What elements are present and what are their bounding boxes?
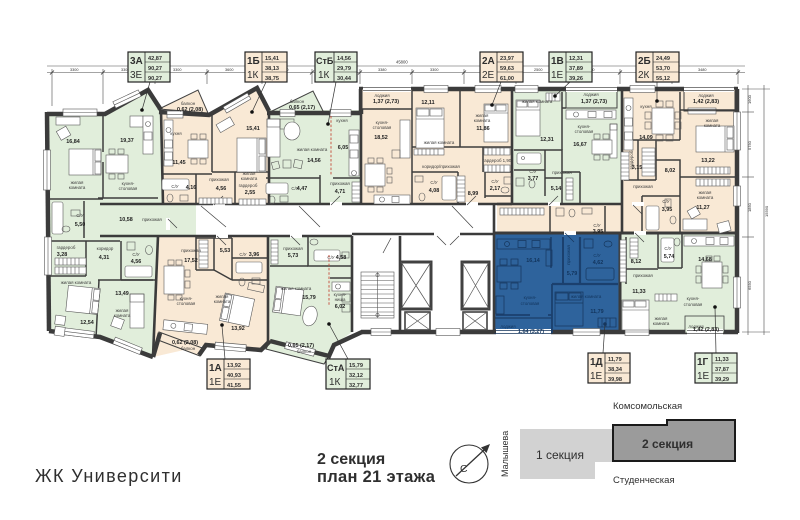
svg-text:41,55: 41,55 (227, 383, 241, 389)
svg-text:прихожая: прихожая (209, 177, 229, 182)
svg-text:С/У: С/У (662, 199, 669, 204)
svg-text:балкон: балкон (290, 99, 305, 104)
svg-text:11,33: 11,33 (715, 357, 729, 363)
svg-text:14,56: 14,56 (337, 56, 351, 62)
svg-text:11,79: 11,79 (608, 357, 622, 363)
svg-text:39,26: 39,26 (569, 76, 583, 82)
svg-text:балкон: балкон (181, 101, 196, 106)
svg-text:1К: 1К (329, 377, 341, 388)
svg-text:15,41: 15,41 (246, 126, 260, 132)
svg-text:4,62: 4,62 (593, 260, 604, 266)
svg-text:61,00: 61,00 (500, 76, 514, 82)
svg-text:16,84: 16,84 (66, 139, 80, 145)
svg-text:С/У: С/У (593, 253, 600, 258)
svg-text:13,49: 13,49 (115, 291, 129, 297)
svg-text:столовая: столовая (684, 302, 703, 307)
svg-text:0,62 (2,08): 0,62 (2,08) (177, 107, 203, 113)
svg-text:балкон: балкон (297, 349, 312, 354)
svg-text:С/У: С/У (593, 223, 600, 228)
svg-text:кухня: кухня (170, 131, 182, 136)
svg-text:жилая комната: жилая комната (424, 140, 455, 145)
svg-text:5,73: 5,73 (288, 253, 299, 259)
svg-text:1,42 (2,83): 1,42 (2,83) (693, 327, 719, 333)
svg-text:13,22: 13,22 (701, 158, 715, 164)
svg-text:столовая: столовая (575, 129, 594, 134)
svg-text:1,42 (2,83): 1,42 (2,83) (693, 99, 719, 105)
svg-text:С/У: С/У (76, 213, 83, 218)
svg-text:4,31: 4,31 (99, 255, 110, 261)
svg-text:11,27: 11,27 (696, 205, 709, 211)
svg-text:Малышева: Малышева (500, 431, 510, 477)
svg-text:4,16: 4,16 (186, 185, 197, 191)
svg-text:кухня: кухня (336, 118, 348, 123)
svg-text:8,12: 8,12 (631, 259, 642, 265)
svg-text:14,09: 14,09 (639, 135, 653, 141)
svg-text:10,58: 10,58 (119, 217, 133, 223)
svg-text:2К: 2К (638, 70, 650, 81)
svg-text:балкон: балкон (181, 346, 196, 351)
svg-text:3300: 3300 (430, 68, 438, 72)
svg-text:38,13: 38,13 (265, 66, 279, 72)
svg-text:1,64 (3,27): 1,64 (3,27) (518, 329, 544, 335)
svg-text:прихожая: прихожая (283, 246, 303, 251)
svg-text:38,75: 38,75 (265, 76, 279, 82)
svg-text:кухня: кухня (640, 104, 652, 109)
svg-text:30,44: 30,44 (337, 76, 352, 82)
svg-text:3,96: 3,96 (249, 252, 260, 258)
svg-text:4,47: 4,47 (297, 186, 308, 192)
svg-text:12,11: 12,11 (421, 100, 434, 106)
svg-text:2Б: 2Б (638, 56, 651, 67)
svg-text:С/У: С/У (491, 179, 498, 184)
svg-text:прихожая: прихожая (552, 170, 572, 175)
svg-text:3,95: 3,95 (593, 229, 604, 235)
svg-text:4,56: 4,56 (216, 186, 227, 192)
svg-text:1850: 1850 (747, 202, 752, 212)
svg-text:42,87: 42,87 (148, 56, 162, 62)
svg-text:1Е: 1Е (551, 70, 564, 81)
svg-text:3Е: 3Е (130, 70, 143, 81)
svg-text:90,27: 90,27 (148, 66, 162, 72)
svg-text:24,49: 24,49 (656, 56, 670, 62)
svg-text:37,89: 37,89 (569, 66, 583, 72)
svg-text:14,56: 14,56 (307, 158, 321, 164)
svg-text:0,65 (2,17): 0,65 (2,17) (289, 105, 315, 111)
svg-text:Студенческая: Студенческая (613, 475, 675, 486)
svg-text:32,77: 32,77 (349, 383, 363, 389)
svg-text:СтБ: СтБ (316, 56, 334, 66)
svg-text:90,27: 90,27 (148, 76, 162, 82)
svg-text:3600: 3600 (225, 68, 233, 72)
svg-text:4,56: 4,56 (131, 259, 142, 265)
svg-text:11,79: 11,79 (590, 309, 603, 315)
svg-text:2,55: 2,55 (245, 190, 256, 196)
svg-text:1Д: 1Д (590, 357, 603, 368)
svg-text:59,63: 59,63 (500, 66, 514, 72)
svg-text:С/У: С/У (327, 255, 334, 260)
svg-text:жилая комната: жилая комната (281, 286, 312, 291)
svg-text:С/У: С/У (239, 252, 246, 257)
svg-text:ЖК Университи: ЖК Университи (35, 466, 183, 486)
svg-text:16,14: 16,14 (526, 258, 540, 264)
svg-text:3,77: 3,77 (528, 176, 539, 182)
svg-text:12,54: 12,54 (80, 320, 94, 326)
svg-text:3,95: 3,95 (662, 207, 673, 213)
svg-text:55,12: 55,12 (656, 76, 670, 82)
svg-text:37,87: 37,87 (715, 367, 729, 373)
svg-text:3,28: 3,28 (57, 252, 68, 258)
svg-text:3480: 3480 (698, 68, 706, 72)
svg-text:39,98: 39,98 (608, 377, 622, 383)
svg-text:13,92: 13,92 (231, 326, 245, 332)
svg-text:гардероб 1,90: гардероб 1,90 (483, 158, 512, 163)
svg-text:комната: комната (704, 123, 721, 128)
svg-text:1 секция: 1 секция (536, 448, 584, 462)
svg-text:коридор: коридор (97, 246, 114, 251)
svg-text:прихожая: прихожая (566, 245, 571, 265)
svg-text:коридор/прихожая: коридор/прихожая (422, 164, 460, 169)
svg-text:1В: 1В (551, 56, 564, 67)
svg-text:6,02: 6,02 (335, 304, 346, 310)
svg-text:8,99: 8,99 (468, 191, 479, 197)
svg-text:1К: 1К (247, 70, 259, 81)
svg-text:1,37 (2,73): 1,37 (2,73) (581, 99, 607, 105)
svg-text:2,17: 2,17 (490, 186, 501, 192)
svg-text:38,34: 38,34 (608, 367, 623, 373)
svg-text:1Е: 1Е (697, 371, 710, 382)
svg-text:40,93: 40,93 (227, 373, 241, 379)
svg-text:3,15: 3,15 (632, 165, 643, 171)
svg-text:23,97: 23,97 (500, 56, 514, 62)
svg-text:3380: 3380 (378, 68, 386, 72)
svg-text:1Е: 1Е (590, 371, 603, 382)
svg-text:5750: 5750 (747, 140, 752, 150)
svg-text:1Г: 1Г (697, 357, 709, 368)
svg-text:гардероб: гардероб (57, 245, 76, 250)
svg-text:6550: 6550 (747, 280, 752, 290)
svg-text:2А: 2А (482, 56, 495, 67)
svg-text:комната: комната (69, 185, 86, 190)
svg-text:4,58: 4,58 (336, 255, 347, 261)
svg-text:5,50: 5,50 (75, 222, 86, 228)
svg-text:С/У: С/У (132, 252, 139, 257)
svg-text:12,31: 12,31 (569, 56, 583, 62)
svg-text:45800: 45800 (396, 60, 408, 65)
svg-text:53,70: 53,70 (656, 66, 670, 72)
svg-text:кухня-: кухня- (687, 296, 700, 301)
svg-text:столовая: столовая (373, 125, 392, 130)
svg-text:лоджия: лоджия (698, 93, 714, 98)
svg-text:11,86: 11,86 (476, 126, 489, 132)
svg-text:11,45: 11,45 (172, 160, 185, 166)
svg-text:лоджия: лоджия (500, 324, 516, 329)
svg-text:3300: 3300 (173, 68, 181, 72)
svg-text:5,14: 5,14 (551, 186, 562, 192)
svg-text:15,41: 15,41 (265, 56, 279, 62)
svg-text:прихожая: прихожая (330, 181, 350, 186)
svg-text:16,67: 16,67 (573, 142, 587, 148)
svg-text:17,52: 17,52 (184, 258, 198, 264)
svg-text:С/У: С/У (430, 180, 437, 185)
svg-text:комната: комната (114, 313, 131, 318)
svg-text:39,29: 39,29 (715, 377, 729, 383)
svg-text:1А: 1А (209, 363, 222, 374)
svg-text:С/У: С/У (664, 246, 671, 251)
svg-text:5,79: 5,79 (567, 271, 578, 277)
svg-text:13,92: 13,92 (227, 363, 241, 369)
svg-text:1Е: 1Е (209, 377, 222, 388)
svg-text:19,37: 19,37 (120, 138, 134, 144)
svg-text:комната: комната (697, 195, 714, 200)
svg-text:ниша: ниша (335, 297, 346, 302)
svg-text:1,37 (2,73): 1,37 (2,73) (373, 99, 399, 105)
svg-text:прихожая: прихожая (142, 217, 162, 222)
svg-text:2 секция: 2 секция (317, 451, 385, 468)
svg-text:прихожая: прихожая (181, 248, 201, 253)
svg-text:2500: 2500 (534, 68, 542, 72)
svg-text:11,33: 11,33 (632, 289, 645, 295)
svg-text:прихожая: прихожая (633, 184, 653, 189)
svg-text:8,02: 8,02 (665, 168, 676, 174)
svg-text:2Е: 2Е (482, 70, 495, 81)
svg-text:жилая комната: жилая комната (297, 147, 328, 152)
svg-text:3300: 3300 (70, 68, 78, 72)
svg-text:15,79: 15,79 (349, 363, 363, 369)
svg-text:2 секция: 2 секция (642, 437, 693, 451)
svg-text:СтА: СтА (327, 363, 345, 373)
svg-text:6,05: 6,05 (338, 145, 349, 151)
svg-text:кухня-: кухня- (524, 295, 537, 300)
svg-text:комната: комната (474, 118, 491, 123)
svg-text:комната: комната (241, 176, 258, 181)
svg-text:жилая комната: жилая комната (522, 99, 553, 104)
svg-text:5,53: 5,53 (220, 248, 231, 254)
svg-text:4,08: 4,08 (429, 188, 440, 194)
svg-text:3А: 3А (130, 56, 143, 67)
svg-text:лоджия: лоджия (374, 93, 390, 98)
svg-text:гардероб: гардероб (239, 183, 258, 188)
svg-text:С/У: С/У (529, 169, 536, 174)
svg-text:15,79: 15,79 (302, 295, 316, 301)
svg-text:12,31: 12,31 (540, 137, 554, 143)
svg-text:комната: комната (214, 299, 231, 304)
svg-text:32,12: 32,12 (349, 373, 363, 379)
svg-text:план 21 этажа: план 21 этажа (317, 468, 436, 486)
svg-text:4,71: 4,71 (335, 189, 346, 195)
svg-text:жилая комната: жилая комната (61, 280, 92, 285)
svg-text:29,79: 29,79 (337, 66, 351, 72)
svg-text:1Б: 1Б (247, 56, 260, 67)
svg-text:С: С (460, 463, 468, 475)
svg-text:комната: комната (653, 321, 670, 326)
svg-text:жилая комната: жилая комната (571, 294, 602, 299)
svg-text:15590: 15590 (764, 205, 769, 217)
svg-text:1К: 1К (318, 70, 330, 81)
svg-text:прихожая: прихожая (633, 273, 653, 278)
svg-text:18,52: 18,52 (374, 135, 388, 141)
svg-text:столовая: столовая (177, 301, 196, 306)
svg-text:Комсомольская: Комсомольская (613, 401, 682, 412)
svg-text:столовая: столовая (119, 186, 138, 191)
svg-text:5,74: 5,74 (664, 254, 675, 260)
svg-text:лоджия: лоджия (583, 92, 599, 97)
svg-text:1600: 1600 (747, 94, 752, 104)
svg-text:столовая: столовая (521, 301, 540, 306)
svg-text:14,68: 14,68 (698, 257, 712, 263)
svg-text:С/У: С/У (171, 184, 178, 189)
